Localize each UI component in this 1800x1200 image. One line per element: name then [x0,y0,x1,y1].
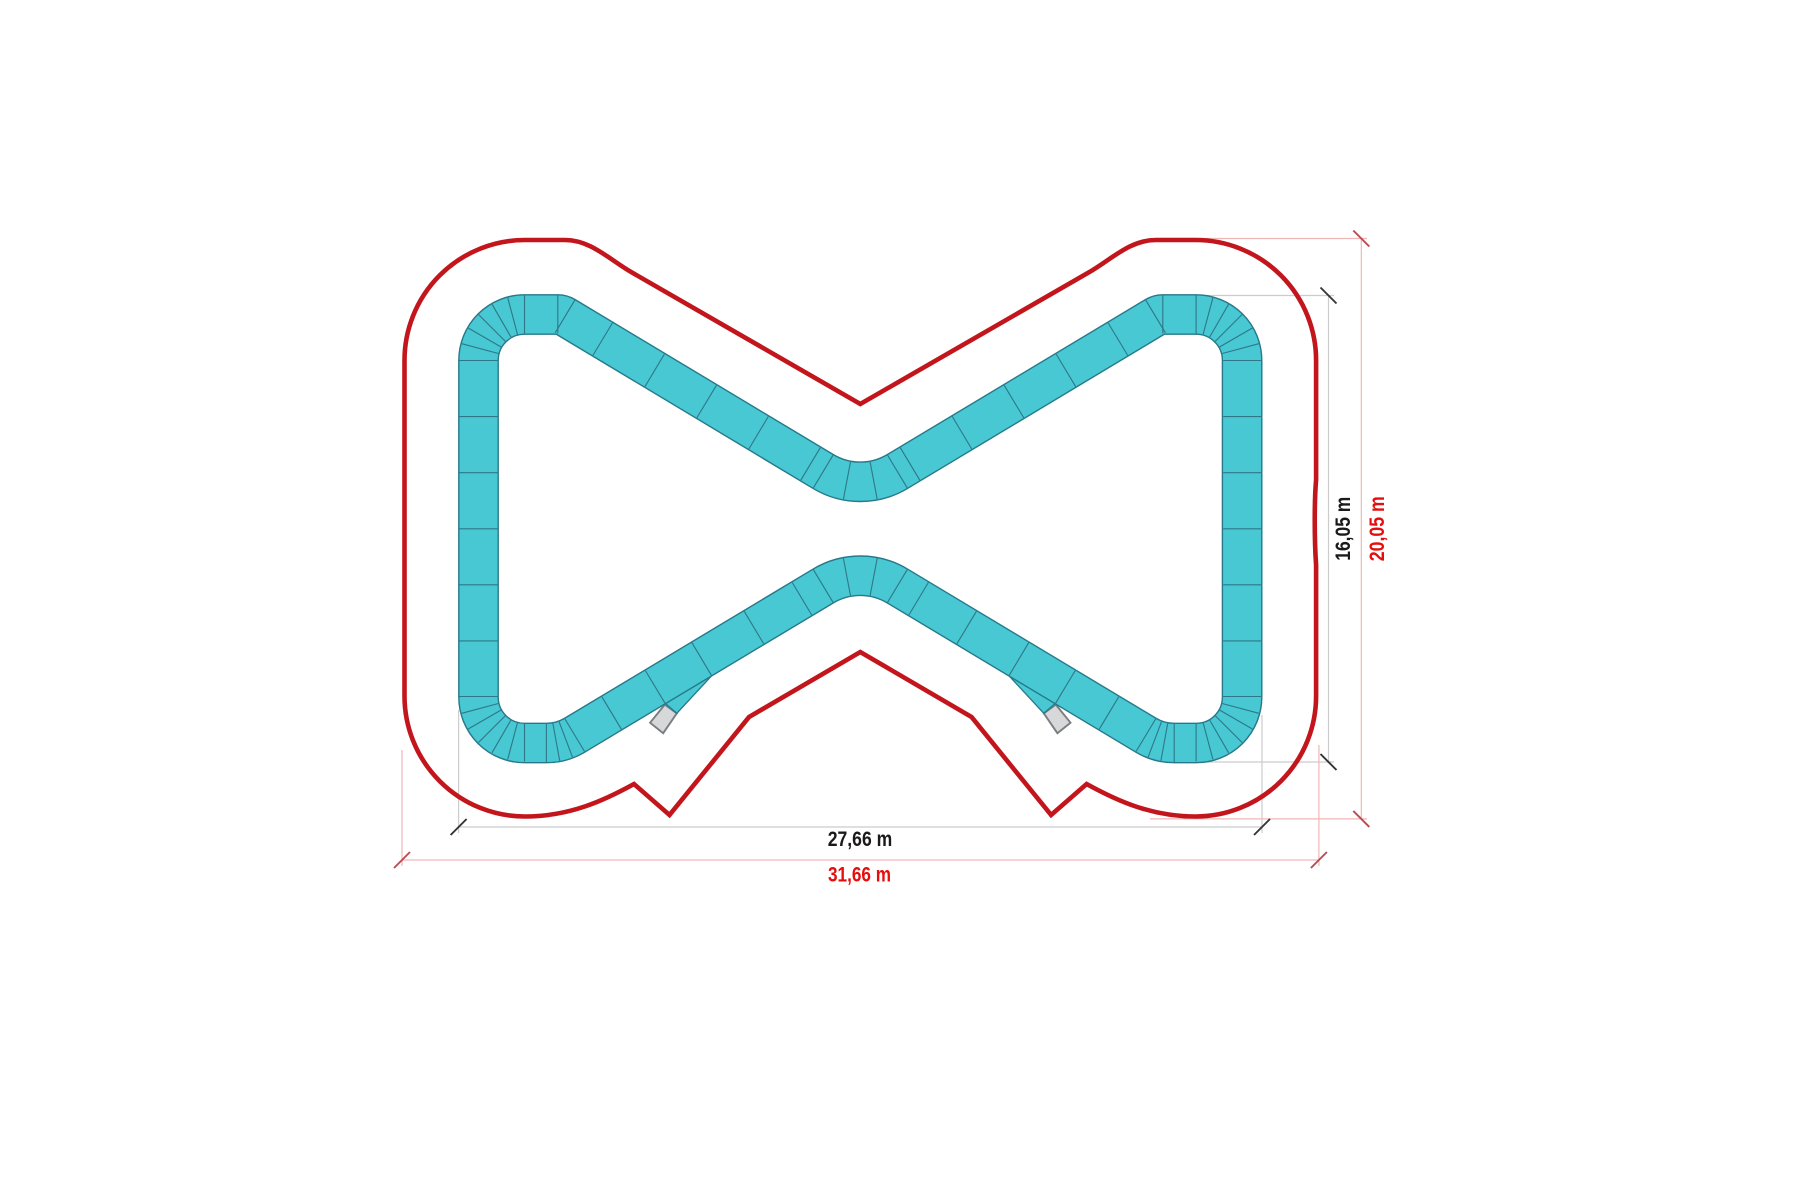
svg-text:20,05 m: 20,05 m [1365,496,1389,561]
svg-text:27,66 m: 27,66 m [828,827,893,851]
svg-text:31,66 m: 31,66 m [828,863,891,887]
svg-text:16,05 m: 16,05 m [1331,497,1355,561]
